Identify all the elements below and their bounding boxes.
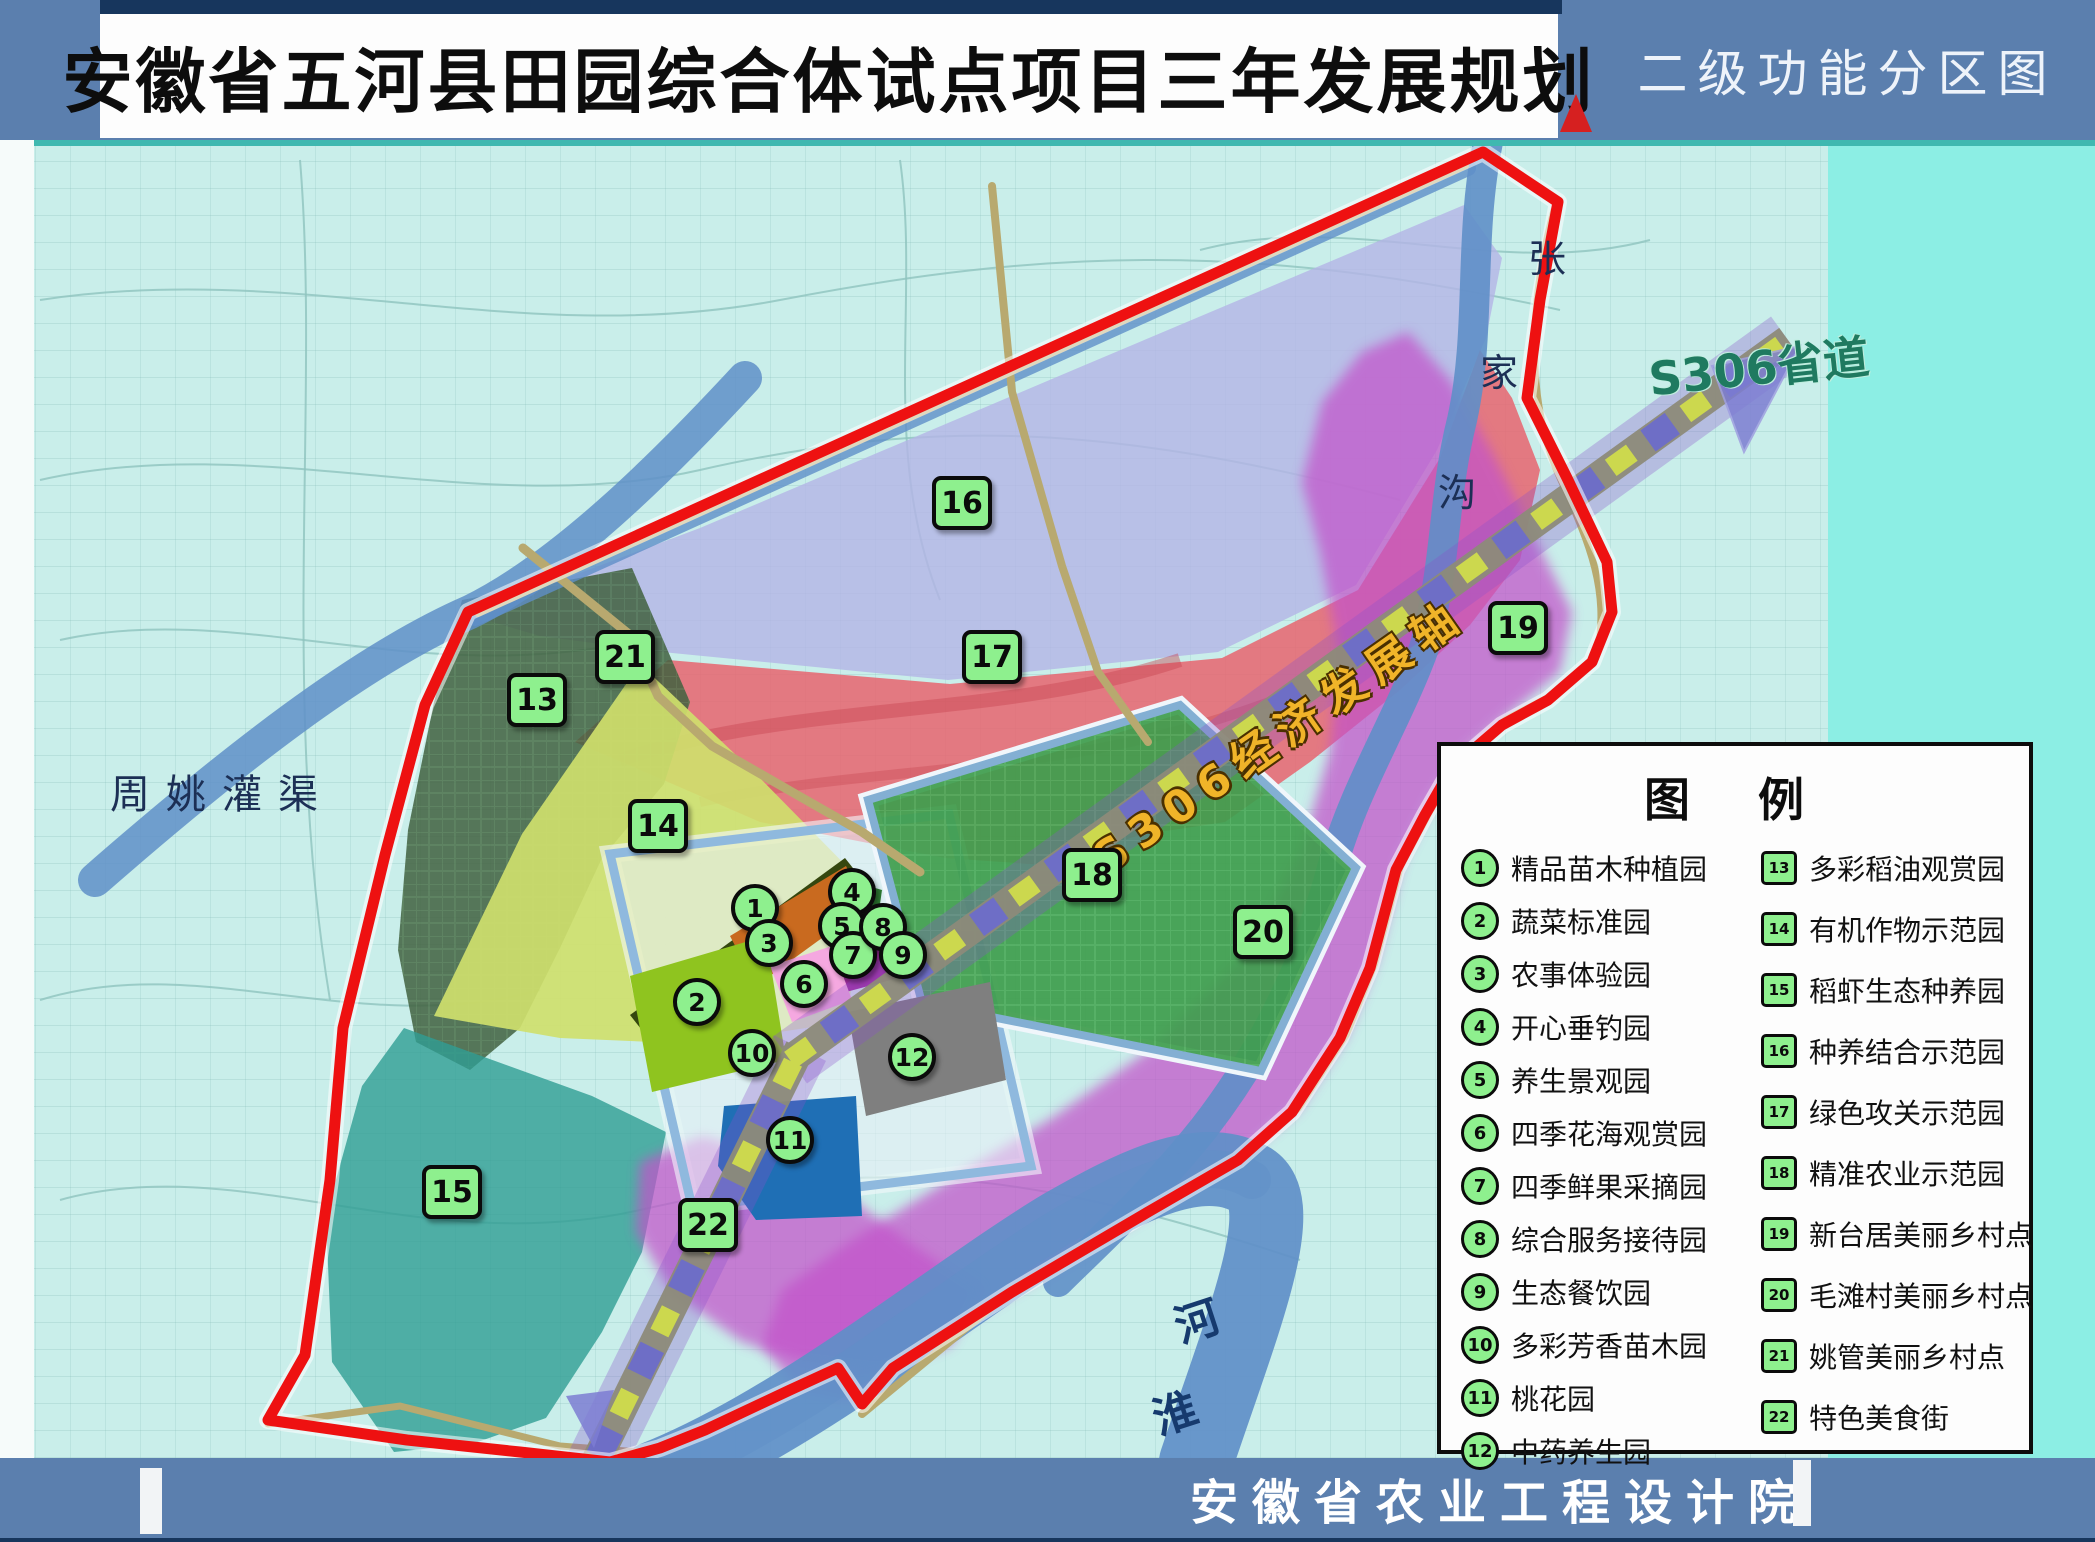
legend-marker-11: 11 [1461,1379,1499,1417]
map-marker-3: 3 [745,919,793,967]
legend-label-17: 绿色攻关示范园 [1809,1092,2005,1132]
map-marker-20: 20 [1233,905,1293,959]
legend-item-14: 14有机作物示范园 [1761,909,2011,949]
legend-marker-2: 2 [1461,902,1499,940]
legend-item-21: 21姚管美丽乡村点 [1761,1336,2011,1376]
legend-label-15: 稻虾生态种养园 [1809,970,2005,1010]
legend-marker-21: 21 [1761,1339,1797,1373]
legend-item-17: 17绿色攻关示范园 [1761,1092,2011,1132]
legend-label-6: 四季花海观赏园 [1511,1113,1707,1153]
legend-label-9: 生态餐饮园 [1511,1272,1651,1312]
map-marker-10: 10 [728,1029,776,1077]
legend-label-1: 精品苗木种植园 [1511,848,1707,888]
legend-item-7: 7四季鲜果采摘园 [1461,1166,1761,1206]
legend-item-19: 19新台居美丽乡村点 [1761,1214,2011,1254]
legend-label-8: 综合服务接待园 [1511,1219,1707,1259]
legend-item-9: 9生态餐饮园 [1461,1272,1761,1312]
legend-marker-22: 22 [1761,1400,1797,1434]
map-marker-21: 21 [595,630,655,684]
planning-map-page: 周姚灌渠 张 家 沟 S306省道 S306经济发展轴 淮 河 12345678… [0,0,2095,1542]
legend-label-12: 中药养生园 [1511,1431,1651,1471]
legend-label-16: 种养结合示范园 [1809,1031,2005,1071]
legend-item-4: 4开心垂钓园 [1461,1007,1761,1047]
legend-label-13: 多彩稻油观赏园 [1809,848,2005,888]
legend-label-10: 多彩芳香苗木园 [1511,1325,1707,1365]
map-marker-16: 16 [932,476,992,530]
legend-marker-10: 10 [1461,1326,1499,1364]
legend-item-12: 12中药养生园 [1461,1431,1761,1471]
legend-marker-1: 1 [1461,849,1499,887]
map-marker-15: 15 [422,1165,482,1219]
legend-item-10: 10多彩芳香苗木园 [1461,1325,1761,1365]
legend-marker-6: 6 [1461,1114,1499,1152]
legend-item-15: 15稻虾生态种养园 [1761,970,2011,1010]
legend-marker-20: 20 [1761,1278,1797,1312]
legend-label-22: 特色美食街 [1809,1397,1949,1437]
map-marker-22: 22 [678,1198,738,1252]
map-marker-11: 11 [766,1116,814,1164]
legend-marker-3: 3 [1461,955,1499,993]
legend-title: 图 例 [1461,764,2013,830]
legend-label-5: 养生景观园 [1511,1060,1651,1100]
legend-marker-14: 14 [1761,912,1797,946]
legend-marker-7: 7 [1461,1167,1499,1205]
legend-column-parks: 1精品苗木种植园2蔬菜标准园3农事体验园4开心垂钓园5养生景观园6四季花海观赏园… [1461,848,1761,1484]
map-marker-14: 14 [628,799,688,853]
map-marker-6: 6 [780,960,828,1008]
legend-label-20: 毛滩村美丽乡村点 [1809,1275,2033,1315]
legend-marker-4: 4 [1461,1008,1499,1046]
legend-marker-16: 16 [1761,1034,1797,1068]
legend-label-7: 四季鲜果采摘园 [1511,1166,1707,1206]
map-marker-17: 17 [962,630,1022,684]
legend-marker-13: 13 [1761,851,1797,885]
legend-marker-5: 5 [1461,1061,1499,1099]
map-marker-13: 13 [507,673,567,727]
legend-label-4: 开心垂钓园 [1511,1007,1651,1047]
legend-item-2: 2蔬菜标准园 [1461,901,1761,941]
legend-label-18: 精准农业示范园 [1809,1153,2005,1193]
map-marker-18: 18 [1062,848,1122,902]
map-marker-12: 12 [888,1033,936,1081]
canal-label: 周姚灌渠 [110,762,334,820]
legend-marker-15: 15 [1761,973,1797,1007]
legend-item-11: 11桃花园 [1461,1378,1761,1418]
legend-item-6: 6四季花海观赏园 [1461,1113,1761,1153]
legend-label-14: 有机作物示范园 [1809,909,2005,949]
legend-item-20: 20毛滩村美丽乡村点 [1761,1275,2011,1315]
legend-marker-8: 8 [1461,1220,1499,1258]
legend-column-demos: 13多彩稻油观赏园14有机作物示范园15稻虾生态种养园16种养结合示范园17绿色… [1761,848,2011,1484]
legend-box: 图 例 1精品苗木种植园2蔬菜标准园3农事体验园4开心垂钓园5养生景观园6四季花… [1437,742,2033,1454]
legend-label-21: 姚管美丽乡村点 [1809,1336,2005,1376]
legend-item-18: 18精准农业示范园 [1761,1153,2011,1193]
map-marker-2: 2 [673,978,721,1026]
zhangjiagou-char-1: 张 [1528,228,1566,283]
zhangjiagou-char-2: 家 [1480,342,1518,397]
legend-item-13: 13多彩稻油观赏园 [1761,848,2011,888]
legend-marker-19: 19 [1761,1217,1797,1251]
zhangjiagou-char-3: 沟 [1438,462,1476,517]
legend-label-2: 蔬菜标准园 [1511,901,1651,941]
legend-item-16: 16种养结合示范园 [1761,1031,2011,1071]
legend-marker-12: 12 [1461,1432,1499,1470]
legend-marker-17: 17 [1761,1095,1797,1129]
legend-item-5: 5养生景观园 [1461,1060,1761,1100]
legend-item-22: 22特色美食街 [1761,1397,2011,1437]
legend-marker-18: 18 [1761,1156,1797,1190]
legend-item-1: 1精品苗木种植园 [1461,848,1761,888]
legend-label-19: 新台居美丽乡村点 [1809,1214,2033,1254]
map-marker-19: 19 [1488,601,1548,655]
legend-item-3: 3农事体验园 [1461,954,1761,994]
map-marker-9: 9 [879,931,927,979]
legend-label-3: 农事体验园 [1511,954,1651,994]
legend-marker-9: 9 [1461,1273,1499,1311]
legend-label-11: 桃花园 [1511,1378,1595,1418]
legend-item-8: 8综合服务接待园 [1461,1219,1761,1259]
